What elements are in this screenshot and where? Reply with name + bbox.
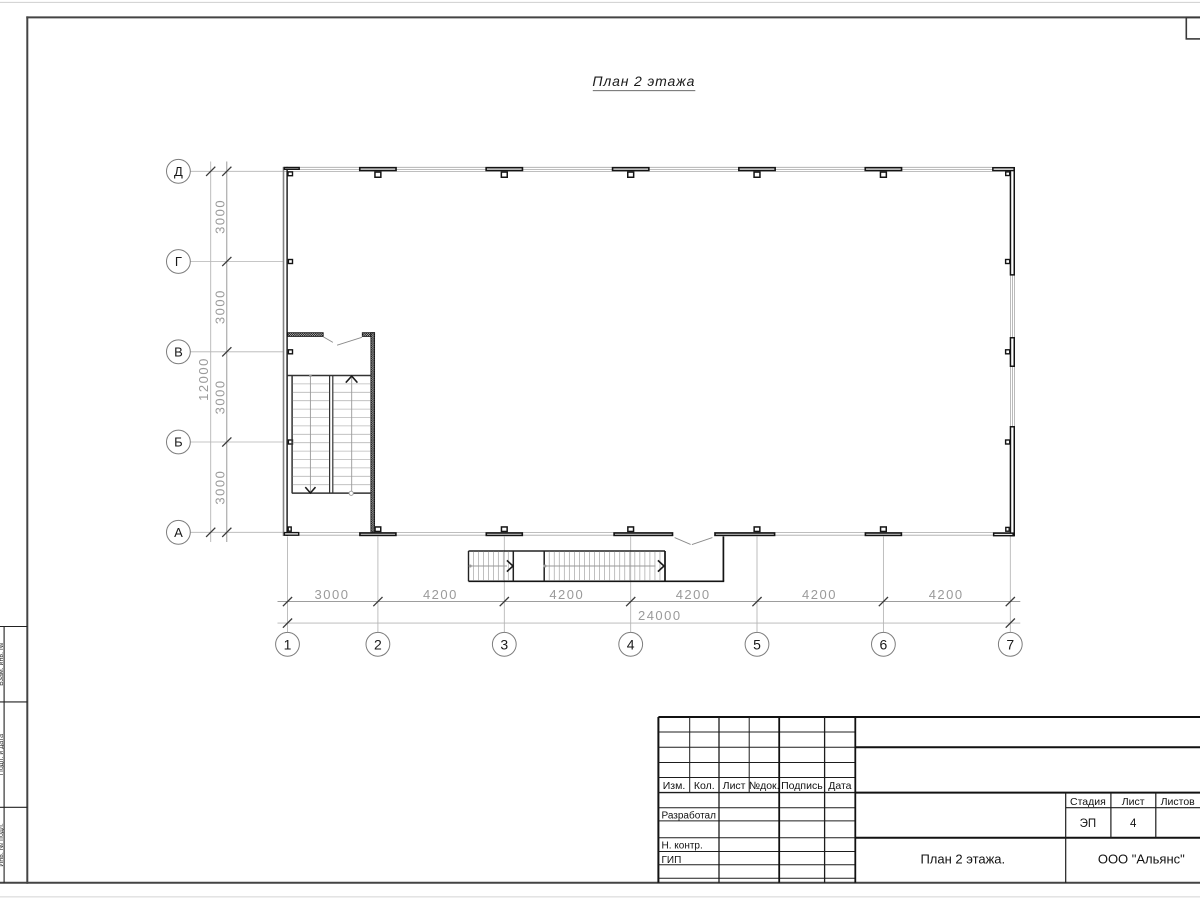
svg-text:3000: 3000 xyxy=(213,199,228,234)
svg-text:Инв. № подл.: Инв. № подл. xyxy=(0,823,5,867)
svg-text:Листов: Листов xyxy=(1161,796,1196,808)
svg-text:3000: 3000 xyxy=(213,379,228,414)
svg-text:4200: 4200 xyxy=(802,587,837,602)
svg-text:4: 4 xyxy=(1130,818,1137,830)
svg-text:В: В xyxy=(174,345,183,360)
svg-text:Стадия: Стадия xyxy=(1070,796,1106,808)
svg-text:Разработал: Разработал xyxy=(662,809,717,821)
svg-text:12000: 12000 xyxy=(196,357,211,401)
svg-text:4200: 4200 xyxy=(549,587,584,602)
svg-text:Н. контр.: Н. контр. xyxy=(662,841,703,852)
svg-text:7: 7 xyxy=(1006,636,1014,652)
svg-text:Б: Б xyxy=(174,435,183,450)
svg-text:Подпись: Подпись xyxy=(781,780,823,792)
svg-text:Д: Д xyxy=(174,164,183,179)
svg-text:3000: 3000 xyxy=(315,587,350,602)
svg-text:Лист: Лист xyxy=(1122,796,1145,808)
svg-text:4200: 4200 xyxy=(929,587,964,602)
svg-text:План 2 этажа: План 2 этажа xyxy=(592,73,695,89)
svg-text:4200: 4200 xyxy=(423,587,458,602)
svg-text:3000: 3000 xyxy=(213,289,228,324)
svg-text:ГИП: ГИП xyxy=(662,855,682,866)
svg-text:5: 5 xyxy=(753,636,761,652)
svg-text:24000: 24000 xyxy=(638,608,682,623)
svg-text:2: 2 xyxy=(374,636,382,652)
svg-text:Подп. и дата: Подп. и дата xyxy=(0,734,5,775)
svg-text:3: 3 xyxy=(500,636,508,652)
svg-text:План 2 этажа.: План 2 этажа. xyxy=(920,852,1005,867)
svg-text:Г: Г xyxy=(175,254,182,269)
svg-text:Кол.: Кол. xyxy=(694,780,715,792)
svg-text:Дата: Дата xyxy=(828,780,851,792)
svg-text:4: 4 xyxy=(627,636,635,652)
svg-text:4200: 4200 xyxy=(676,587,711,602)
svg-text:А: А xyxy=(174,525,183,540)
svg-text:ЭП: ЭП xyxy=(1080,818,1097,830)
svg-text:№док.: №док. xyxy=(749,780,780,792)
svg-text:3000: 3000 xyxy=(213,470,228,505)
svg-text:Изм.: Изм. xyxy=(663,780,686,792)
svg-text:ООО "Альянс": ООО "Альянс" xyxy=(1098,852,1185,867)
svg-text:Взам. инв. №: Взам. инв. № xyxy=(0,643,5,686)
svg-text:Лист: Лист xyxy=(723,780,746,792)
svg-text:6: 6 xyxy=(880,636,888,652)
svg-text:1: 1 xyxy=(284,636,292,652)
